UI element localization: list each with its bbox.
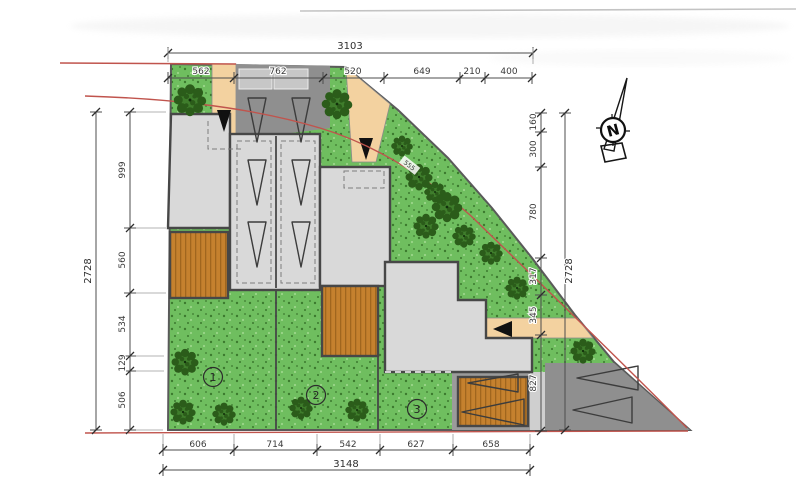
dim-bottom-seg-3: 627 (407, 440, 424, 450)
dim-right-seg-5: 827 (529, 374, 539, 391)
dim-top-seg-3: 649 (413, 67, 430, 77)
dim-right-seg-4: 345 (529, 306, 539, 323)
dim-top-seg-5: 400 (500, 67, 517, 77)
deck-2 (322, 286, 378, 356)
dim-top-seg-0: 562 (192, 67, 209, 77)
dim-top-seg-4: 210 (463, 67, 480, 77)
dim-left-seg-1: 560 (118, 251, 128, 268)
dim-right-seg-3: 317 (529, 267, 539, 284)
dim-top-seg-2: 520 (344, 67, 361, 77)
dim-left-seg-2: 534 (118, 315, 128, 332)
dim-top-seg-1: 762 (269, 67, 286, 77)
dim-right-seg-1: 300 (529, 140, 539, 157)
deck-1 (170, 232, 228, 298)
dim-left-seg-4: 506 (118, 391, 128, 408)
site-plan-page: 1 2 3 555 3103 562 762 520 649 210 400 2… (0, 0, 800, 491)
north-arrow: N (596, 78, 630, 162)
building-row-units (230, 134, 320, 290)
dim-bottom-seg-0: 606 (189, 440, 206, 450)
dim-right-seg-0: 160 (529, 113, 539, 130)
dim-bottom-seg-2: 542 (339, 440, 356, 450)
dim-top-overall: 3103 (337, 41, 362, 52)
plot-2-label: 2 (313, 389, 320, 402)
dim-left-seg-0: 999 (118, 161, 128, 178)
dim-bottom-seg-1: 714 (266, 440, 283, 450)
building-3 (320, 167, 390, 286)
parking-slab (239, 69, 272, 89)
site-plan-canvas: 1 2 3 555 3103 562 762 520 649 210 400 2… (0, 0, 800, 491)
dim-right-overall: 2728 (564, 258, 575, 283)
dim-right-seg-2: 780 (529, 203, 539, 220)
dim-left-seg-3: 129 (118, 354, 128, 371)
plot-3-label: 3 (414, 403, 421, 416)
dim-bottom-seg-4: 658 (482, 440, 499, 450)
scan-noise (70, 9, 796, 66)
dim-bottom-overall: 3148 (333, 459, 358, 470)
building-1 (168, 114, 230, 228)
dim-left-overall: 2728 (83, 258, 94, 283)
plot-1-label: 1 (210, 371, 217, 384)
